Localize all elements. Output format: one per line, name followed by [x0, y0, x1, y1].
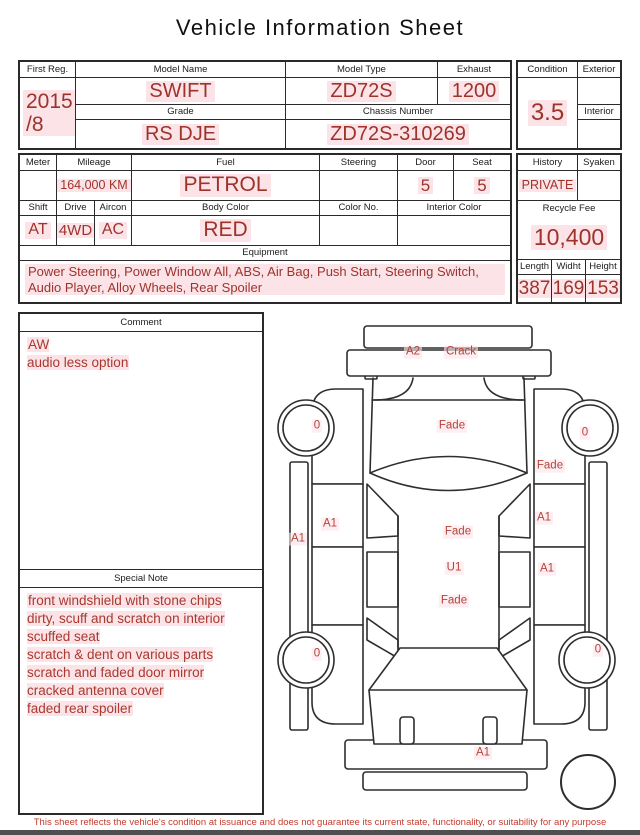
diagram-label-a1: A1 [538, 563, 556, 576]
diagram-label-fade: Fade [443, 526, 473, 539]
recycle-fee-value: 10,400 [518, 216, 620, 260]
aircon-value: AC [95, 216, 132, 246]
history-fee-box: History Syaken PRIVATE Recycle Fee 10,40… [516, 153, 622, 304]
diagram-label-a1: A1 [535, 512, 553, 525]
interior-color-label: Interior Color [398, 201, 510, 216]
grade-label: Grade [76, 105, 286, 120]
diagram-label-0: 0 [312, 648, 322, 661]
diagram-label-u1: U1 [445, 562, 464, 575]
dimensions-grid: Length Widht Height 387 169 153 [518, 260, 620, 302]
fuel-value: PETROL [132, 171, 320, 201]
width-value: 169 [552, 275, 586, 302]
diagram-label-0: 0 [580, 427, 590, 440]
exterior-label: Exterior [578, 62, 620, 78]
grade-value: RS DJE [76, 120, 286, 148]
comment-box: Comment AW audio less option Special Not… [18, 312, 264, 815]
special-note-text: front windshield with stone chips dirty,… [20, 588, 262, 813]
interior-value [578, 120, 620, 148]
vehicle-information-sheet: Vehicle Information Sheet First Reg. 201… [0, 0, 640, 835]
history-value: PRIVATE [518, 171, 578, 201]
height-label: Height [586, 260, 620, 275]
door-value: 5 [398, 171, 454, 201]
model-name-value: SWIFT [76, 78, 286, 105]
page-title: Vehicle Information Sheet [0, 15, 640, 41]
shift-value: AT [20, 216, 57, 246]
condition-label: Condition [518, 62, 578, 78]
exhaust-value: 1200 [438, 78, 510, 105]
vehicle-details-table: Meter Mileage Fuel Steering Door Seat 16… [18, 153, 512, 304]
interior-color-value [398, 216, 510, 246]
mileage-label: Mileage [57, 155, 132, 171]
seat-value: 5 [454, 171, 510, 201]
model-type-value: ZD72S [286, 78, 438, 105]
shift-label: Shift [20, 201, 57, 216]
diagram-label-a1: A1 [321, 518, 339, 531]
color-no-label: Color No. [320, 201, 398, 216]
condition-box: Condition 3.5 Exterior Interior [516, 60, 622, 150]
comment-text: AW audio less option [20, 332, 262, 569]
page-bottom-edge [0, 830, 640, 835]
body-color-value: RED [132, 216, 320, 246]
drive-value: 4WD [57, 216, 95, 246]
diagram-label-fade: Fade [535, 460, 565, 473]
diagram-label-0: 0 [312, 420, 322, 433]
model-type-label: Model Type [286, 62, 438, 78]
diagram-label-crack: Crack [444, 346, 478, 359]
syaken-label: Syaken [578, 155, 620, 171]
diagram-label-a2: A2 [404, 346, 422, 359]
comment-header: Comment [20, 314, 262, 332]
history-label: History [518, 155, 578, 171]
body-color-label: Body Color [132, 201, 320, 216]
door-label: Door [398, 155, 454, 171]
diagram-label-fade: Fade [439, 595, 469, 608]
steering-value [320, 171, 398, 201]
chassis-number-label: Chassis Number [286, 105, 510, 120]
meter-value [20, 171, 57, 201]
width-label: Widht [552, 260, 586, 275]
drive-label: Drive [57, 201, 95, 216]
diagram-labels-layer: A2Crack0Fade0FadeA1A1A1FadeU1A1Fade00A1 [270, 312, 638, 812]
mileage-value: 164,000 KM [57, 171, 132, 201]
recycle-fee-label: Recycle Fee [518, 201, 620, 216]
vehicle-info-table: First Reg. 2015 /8 Model Name SWIFT Mode… [18, 60, 512, 150]
seat-label: Seat [454, 155, 510, 171]
meter-label: Meter [20, 155, 57, 171]
special-note-header: Special Note [20, 569, 262, 588]
model-name-label: Model Name [76, 62, 286, 78]
first-reg-label: First Reg. [20, 62, 76, 78]
steering-label: Steering [320, 155, 398, 171]
disclaimer-text: This sheet reflects the vehicle's condit… [0, 817, 640, 828]
diagram-label-0: 0 [593, 644, 603, 657]
fuel-label: Fuel [132, 155, 320, 171]
aircon-label: Aircon [95, 201, 132, 216]
diagram-label-fade: Fade [437, 420, 467, 433]
height-value: 153 [586, 275, 620, 302]
equipment-label: Equipment [20, 246, 510, 261]
condition-value: 3.5 [518, 78, 578, 148]
diagram-label-a1: A1 [474, 747, 492, 760]
equipment-text: Power Steering, Power Window All, ABS, A… [20, 261, 510, 302]
chassis-number-value: ZD72S-310269 [286, 120, 510, 148]
car-condition-diagram: A2Crack0Fade0FadeA1A1A1FadeU1A1Fade00A1 [270, 312, 638, 812]
syaken-value [578, 171, 620, 201]
exterior-value [578, 78, 620, 105]
interior-label: Interior [578, 105, 620, 120]
color-no-value [320, 216, 398, 246]
diagram-label-a1: A1 [289, 533, 307, 546]
exhaust-label: Exhaust [438, 62, 510, 78]
length-value: 387 [518, 275, 552, 302]
length-label: Length [518, 260, 552, 275]
first-reg-value: 2015 /8 [20, 78, 76, 148]
